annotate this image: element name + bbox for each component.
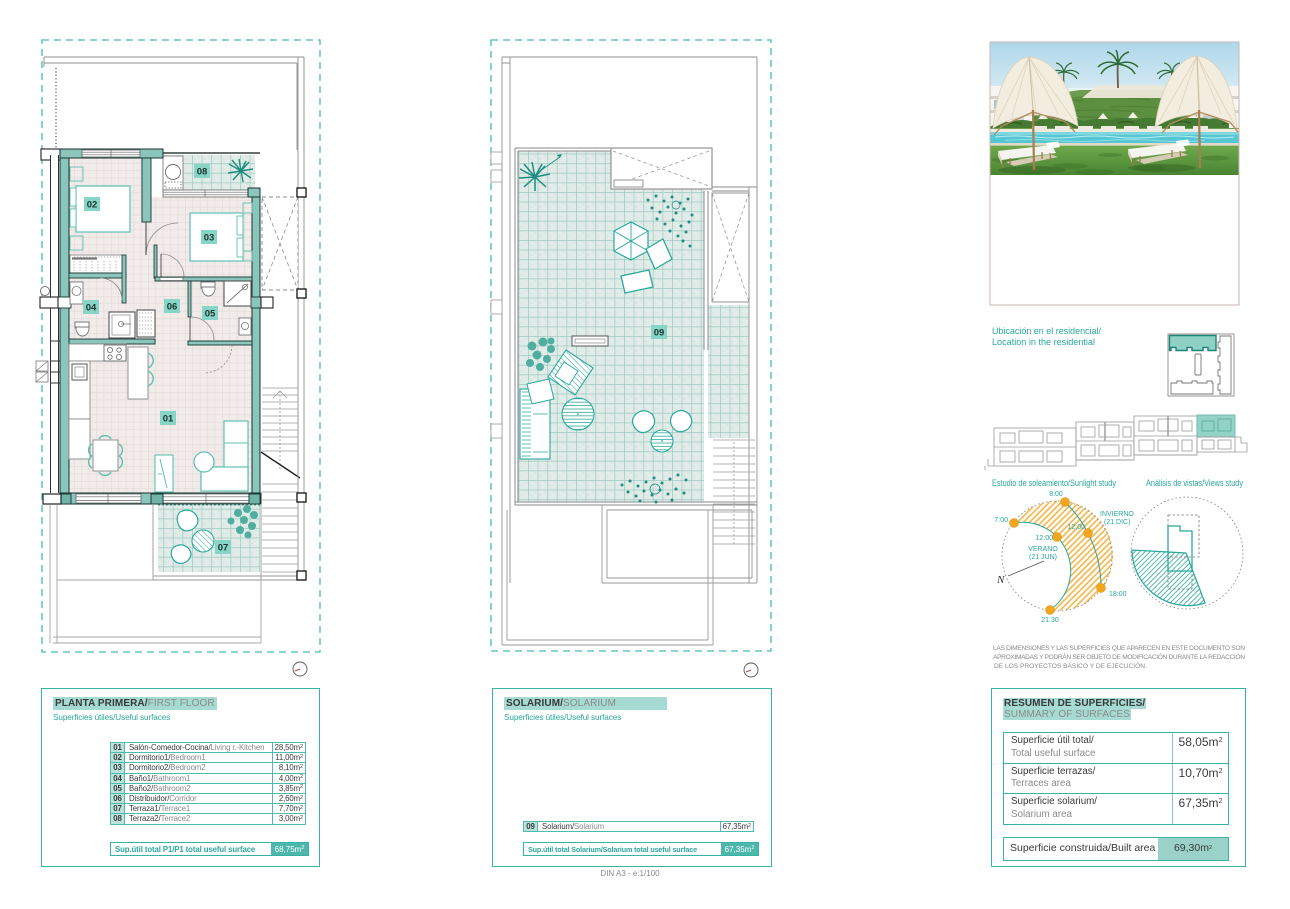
svg-text:(21 JUN): (21 JUN)	[1029, 554, 1057, 561]
svg-text:Análisis de vistas/Views study: Análisis de vistas/Views study	[1146, 478, 1243, 488]
svg-text:06: 06	[167, 302, 178, 313]
svg-text:03: 03	[204, 233, 215, 244]
svg-text:07: 07	[218, 543, 229, 554]
svg-text:04: 04	[86, 303, 97, 314]
svg-text:12:00: 12:00	[1067, 524, 1085, 531]
svg-text:08: 08	[197, 167, 208, 178]
svg-text:21:30: 21:30	[1041, 617, 1059, 624]
svg-text:09: 09	[654, 328, 665, 339]
svg-text:LAS DIMENSIONES Y LAS SUPERFIC: LAS DIMENSIONES Y LAS SUPERFICIES QUE AP…	[993, 645, 1245, 652]
svg-text:INVIERNO: INVIERNO	[1100, 511, 1134, 518]
svg-text:Location in the residential: Location in the residential	[992, 337, 1095, 347]
svg-text:(21 DIC): (21 DIC)	[1104, 519, 1130, 526]
svg-text:N: N	[996, 574, 1005, 586]
svg-text:DE LOS PROYECTOS BÁSICO Y DE E: DE LOS PROYECTOS BÁSICO Y DE EJECUCIÓN.	[994, 661, 1147, 670]
svg-text:05: 05	[205, 309, 216, 320]
svg-text:02: 02	[87, 200, 98, 211]
svg-text:01: 01	[163, 414, 174, 425]
svg-text:Ubicación en el residencial/: Ubicación en el residencial/	[992, 326, 1101, 336]
svg-text:18:00: 18:00	[1109, 591, 1127, 598]
svg-text:APROXIMADAS Y PODRÁN SER OBJET: APROXIMADAS Y PODRÁN SER OBJETO DE MODIF…	[993, 652, 1245, 661]
svg-text:8:00: 8:00	[1049, 491, 1063, 498]
svg-text:VERANO: VERANO	[1028, 546, 1058, 553]
svg-text:Estudio de soleamiento/Sunligh: Estudio de soleamiento/Sunlight study	[992, 478, 1116, 488]
svg-text:12:00: 12:00	[1035, 535, 1053, 542]
svg-text:7:00: 7:00	[994, 517, 1008, 524]
